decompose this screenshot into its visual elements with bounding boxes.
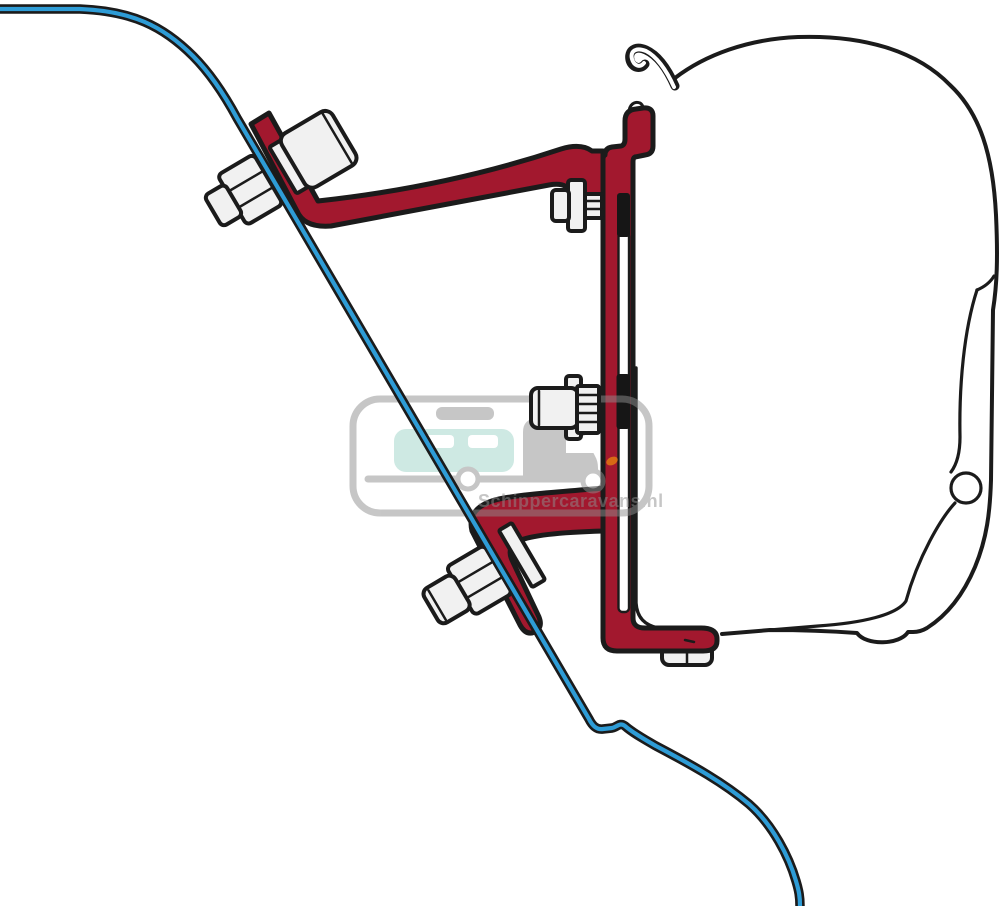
arm-bolt-cap (552, 190, 569, 221)
watermark-caravan-wheel (458, 469, 478, 489)
rail-clamp-top (617, 193, 630, 237)
awning-case (628, 37, 997, 642)
awning-case-body (636, 37, 997, 634)
awning-adapter-diagram: Schippercaravans.nl (0, 0, 1000, 906)
rail-adjust-bolt (531, 376, 599, 439)
watermark-text: Schippercaravans.nl (478, 491, 664, 511)
watermark-caravan-body (394, 429, 514, 472)
watermark-caravan-window-right (468, 435, 498, 448)
watermark-roof-box (436, 407, 494, 420)
arm-bolt-stub (585, 194, 602, 218)
watermark-cab-wheel (583, 471, 603, 491)
mid-bolt-knurl (577, 386, 599, 433)
diagram-canvas: Schippercaravans.nl (0, 0, 1000, 906)
